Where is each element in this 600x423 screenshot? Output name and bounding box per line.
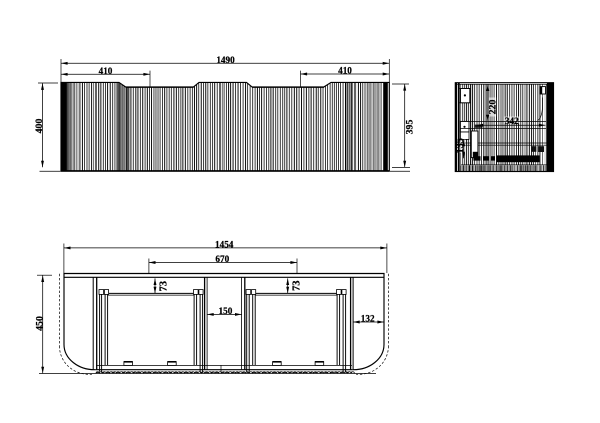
svg-text:1490: 1490 — [216, 55, 235, 65]
svg-text:410: 410 — [99, 66, 113, 76]
svg-text:400: 400 — [34, 119, 45, 134]
svg-text:135: 135 — [455, 138, 466, 153]
svg-text:670: 670 — [215, 254, 229, 264]
svg-text:410: 410 — [338, 66, 352, 76]
svg-text:450: 450 — [34, 316, 45, 331]
svg-text:132: 132 — [361, 314, 375, 324]
svg-text:395: 395 — [405, 120, 416, 135]
svg-text:1454: 1454 — [215, 239, 234, 249]
svg-text:73: 73 — [291, 281, 302, 292]
svg-text:150: 150 — [219, 306, 233, 316]
svg-text:73: 73 — [159, 281, 170, 292]
svg-text:220: 220 — [488, 100, 499, 115]
